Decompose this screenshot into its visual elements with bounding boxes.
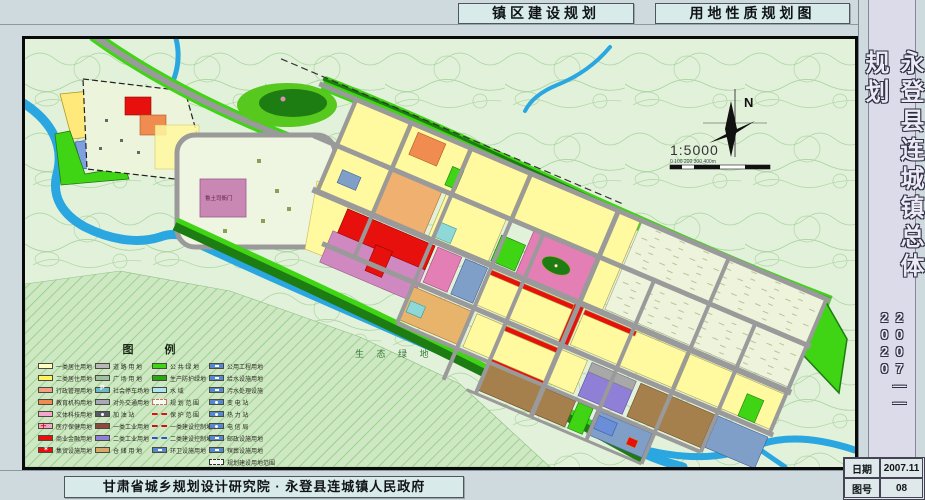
- sheet-series-title: 镇区建设规划: [458, 3, 634, 24]
- legend-swatch: [152, 363, 167, 369]
- legend-swatch: [38, 411, 53, 417]
- sheet-title: 用地性质规划图: [655, 3, 850, 24]
- legend-item: 教育机构用地: [38, 396, 95, 408]
- legend-item: 广 场 用 地: [95, 372, 152, 384]
- legend-item: 二类工业用地: [95, 432, 152, 444]
- legend-swatch-water: [152, 387, 167, 393]
- legend-item-label: 保 护 范 围: [170, 410, 199, 419]
- legend-column-3: 公 共 绿 地 生产防护绿地 水 域 规 划 范 围 保 护 范 围 一类建设控…: [152, 360, 209, 468]
- project-title-vertical: 永登县连城镇总体规划: [857, 50, 925, 304]
- legend-swatch-utility: [209, 423, 224, 429]
- legend-item: 污水处理设施: [209, 384, 274, 396]
- commercial-parcel: [125, 97, 151, 115]
- legend-swatch: [95, 447, 110, 453]
- drawing-stamp: 日期 2007.11 图号 08: [843, 457, 925, 500]
- legend-item: 商业金融用地: [38, 432, 95, 444]
- legend-item: 道 路 用 地: [95, 360, 152, 372]
- legend-item-label: 水 域: [170, 386, 184, 395]
- legend-item-label: 殡葬设施用地: [227, 446, 263, 455]
- legend-item-label: 生产防护绿地: [170, 374, 206, 383]
- legend-item: 对外交通用地: [95, 396, 152, 408]
- legend-column-4: 公用工程用地 给水设施用地 污水处理设施 变 电 站 热 力 站 电 信 局 邮…: [209, 360, 274, 468]
- legend-item: 一类居住用地: [38, 360, 95, 372]
- north-label: N: [744, 95, 753, 110]
- legend-item: 医疗保健用地: [38, 420, 95, 432]
- legend-swatch-parking: [95, 387, 110, 393]
- legend-item-label: 仓 储 用 地: [113, 446, 142, 455]
- legend-item: 热 力 站: [209, 408, 274, 420]
- legend-swatch-plan-boundary: [152, 399, 167, 405]
- legend-item: 公 共 绿 地: [152, 360, 209, 372]
- sheet-number-value: 08: [880, 478, 923, 498]
- legend-column-1: 一类居住用地 二类居住用地 行政管理用地 教育机构用地 文体科技用地 医疗保健用…: [38, 360, 95, 468]
- legend-column-2: 道 路 用 地 广 场 用 地 社会停车场地 对外交通用地 加 油 站 一类工业…: [95, 360, 152, 468]
- legend-swatch-utility: [209, 411, 224, 417]
- legend-swatch-utility: [209, 387, 224, 393]
- legend-swatch: [95, 435, 110, 441]
- legend-item: 社会停车场地: [95, 384, 152, 396]
- legend-swatch-utility: [209, 399, 224, 405]
- title-block: 永登县连城镇总体规划 2007——2020: [858, 0, 925, 500]
- legend-swatch: [95, 375, 110, 381]
- legend-item: 生产防护绿地: [152, 372, 209, 384]
- credit-box: 甘肃省城乡规划设计研究院 · 永登县连城镇人民政府: [64, 476, 464, 498]
- legend-swatch: [38, 363, 53, 369]
- legend-swatch: [95, 363, 110, 369]
- legend-item-label: 给水设施用地: [227, 374, 263, 383]
- legend-title: 图 例: [38, 341, 274, 357]
- legend-item-label: 二类工业用地: [113, 434, 149, 443]
- eco-green-label: 生 态 绿 地: [355, 348, 434, 359]
- legend-item-label: 二类居住用地: [56, 374, 92, 383]
- legend-swatch-utility: [209, 375, 224, 381]
- legend-item: 公用工程用地: [209, 360, 274, 372]
- legend-item: 水 域: [152, 384, 209, 396]
- legend-item-label: 道 路 用 地: [113, 362, 142, 371]
- date-label: 日期: [844, 458, 880, 478]
- legend-item: 殡葬设施用地: [209, 444, 274, 456]
- legend-swatch-utility: [209, 447, 224, 453]
- heritage-site-label: 鲁土司衙门: [205, 194, 233, 202]
- legend-swatch-control-line-2: [152, 437, 167, 439]
- legend-item: 文体科技用地: [38, 408, 95, 420]
- title-block-panel: 永登县连城镇总体规划 2007——2020: [868, 0, 916, 459]
- legend-swatch: [38, 375, 53, 381]
- legend-item-label: 加 油 站: [113, 410, 134, 419]
- legend-item-label: 集贸设施用地: [56, 446, 92, 455]
- legend-swatch-protection-line: [152, 413, 167, 415]
- legend-item-label: 文体科技用地: [56, 410, 92, 419]
- legend-item: 行政管理用地: [38, 384, 95, 396]
- legend-swatch: [38, 399, 53, 405]
- legend-item: 给水设施用地: [209, 372, 274, 384]
- legend-swatch-control-line-1: [152, 425, 167, 427]
- legend-item-label: 行政管理用地: [56, 386, 92, 395]
- legend-swatch: [95, 399, 110, 405]
- legend-item-label: 热 力 站: [227, 410, 248, 419]
- legend-item-label: 社会停车场地: [113, 386, 149, 395]
- legend-item-label: 变 电 站: [227, 398, 248, 407]
- legend-swatch: [38, 387, 53, 393]
- legend-item: 保 护 范 围: [152, 408, 209, 420]
- legend-item-label: 商业金融用地: [56, 434, 92, 443]
- scale-text: 1:5000: [670, 142, 719, 158]
- legend-item: 一类建设控制地带: [152, 420, 209, 432]
- legend-swatch: [152, 375, 167, 381]
- legend-item: 环卫设施用地: [152, 444, 209, 456]
- legend-swatch-market-star: [38, 447, 53, 453]
- legend-item: 加 油 站: [95, 408, 152, 420]
- legend-item-label: 环卫设施用地: [170, 446, 206, 455]
- legend-item: 二类居住用地: [38, 372, 95, 384]
- legend-item-label: 邮政设施用地: [227, 434, 263, 443]
- legend-item-label: 对外交通用地: [113, 398, 149, 407]
- legend-item: 规划建设用地范围: [209, 456, 274, 468]
- legend: 图 例 一类居住用地 二类居住用地 行政管理用地 教育机构用地 文体科技用地 医…: [38, 341, 274, 468]
- legend-swatch-build-boundary: [209, 459, 224, 465]
- plan-period: 2007——2020: [877, 310, 907, 459]
- legend-item-label: 教育机构用地: [56, 398, 92, 407]
- legend-item-label: 一类居住用地: [56, 362, 92, 371]
- legend-item-label: 一类工业用地: [113, 422, 149, 431]
- scalebar-ticks: 0 100 200 300 400m: [670, 159, 716, 165]
- legend-item-label: 规 划 范 围: [170, 398, 199, 407]
- legend-swatch: [95, 423, 110, 429]
- legend-item-label: 规划建设用地范围: [227, 458, 275, 467]
- legend-swatch-utility: [209, 435, 224, 441]
- legend-item-label: 公用工程用地: [227, 362, 263, 371]
- legend-item: 规 划 范 围: [152, 396, 209, 408]
- legend-item: 一类工业用地: [95, 420, 152, 432]
- legend-item-label: 广 场 用 地: [113, 374, 142, 383]
- legend-item: 集贸设施用地: [38, 444, 95, 456]
- legend-item: 电 信 局: [209, 420, 274, 432]
- legend-swatch-gas-station: [95, 411, 110, 417]
- legend-swatch-medical-cross: [38, 423, 53, 429]
- legend-item: 邮政设施用地: [209, 432, 274, 444]
- legend-swatch-utility: [209, 363, 224, 369]
- legend-item-label: 污水处理设施: [227, 386, 263, 395]
- legend-swatch-sanitation: [152, 447, 167, 453]
- legend-item: 仓 储 用 地: [95, 444, 152, 456]
- sheet-number-label: 图号: [844, 478, 880, 498]
- legend-item: 二类建设控制地带: [152, 432, 209, 444]
- legend-item-label: 电 信 局: [227, 422, 248, 431]
- date-value: 2007.11: [880, 458, 923, 478]
- legend-item-label: 医疗保健用地: [56, 422, 92, 431]
- legend-item: 变 电 站: [209, 396, 274, 408]
- plan-sheet: 镇区建设规划 用地性质规划图: [0, 0, 925, 500]
- legend-item-label: 公 共 绿 地: [170, 362, 199, 371]
- legend-swatch: [38, 435, 53, 441]
